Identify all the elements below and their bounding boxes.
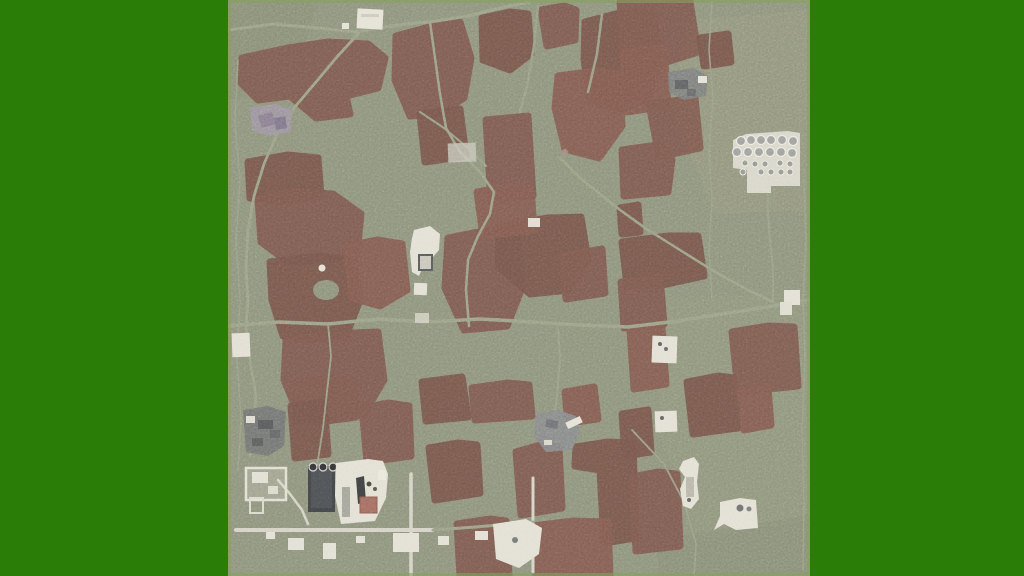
texture-overlay <box>228 0 810 576</box>
map-image <box>228 0 810 576</box>
map-preview <box>228 0 810 576</box>
left-green-margin <box>0 0 228 576</box>
screenshot-root <box>0 0 1024 576</box>
right-green-margin <box>810 0 1024 576</box>
